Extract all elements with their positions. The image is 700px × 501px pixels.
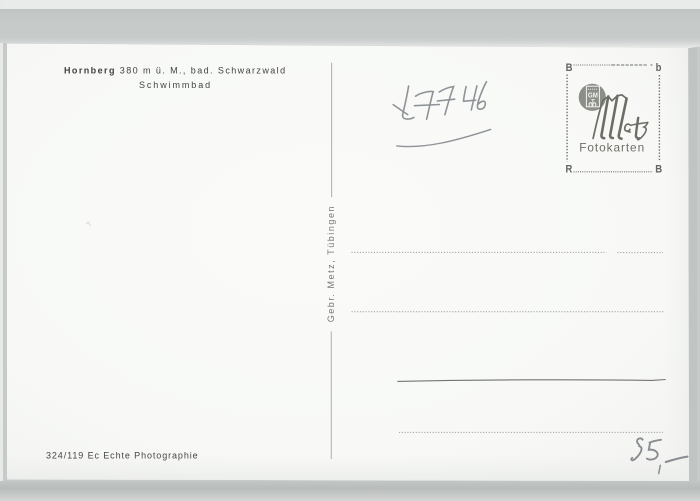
svg-text:R: R <box>566 164 573 176</box>
svg-text:B: B <box>566 62 573 74</box>
svg-text:b: b <box>656 62 662 74</box>
svg-text:Schwimmbad: Schwimmbad <box>139 80 212 90</box>
svg-text:T: T <box>591 99 595 105</box>
svg-text:324/119 Ec Echte Photographie: 324/119 Ec Echte Photographie <box>46 450 199 460</box>
svg-text:Fotokarten: Fotokarten <box>579 141 645 155</box>
svg-text:Gebr. Metz, Tübingen: Gebr. Metz, Tübingen <box>326 205 336 322</box>
svg-text:Hornberg 380 m ü. M., bad. Sch: Hornberg 380 m ü. M., bad. Schwarzwald <box>64 66 287 76</box>
svg-text:B: B <box>655 164 662 176</box>
